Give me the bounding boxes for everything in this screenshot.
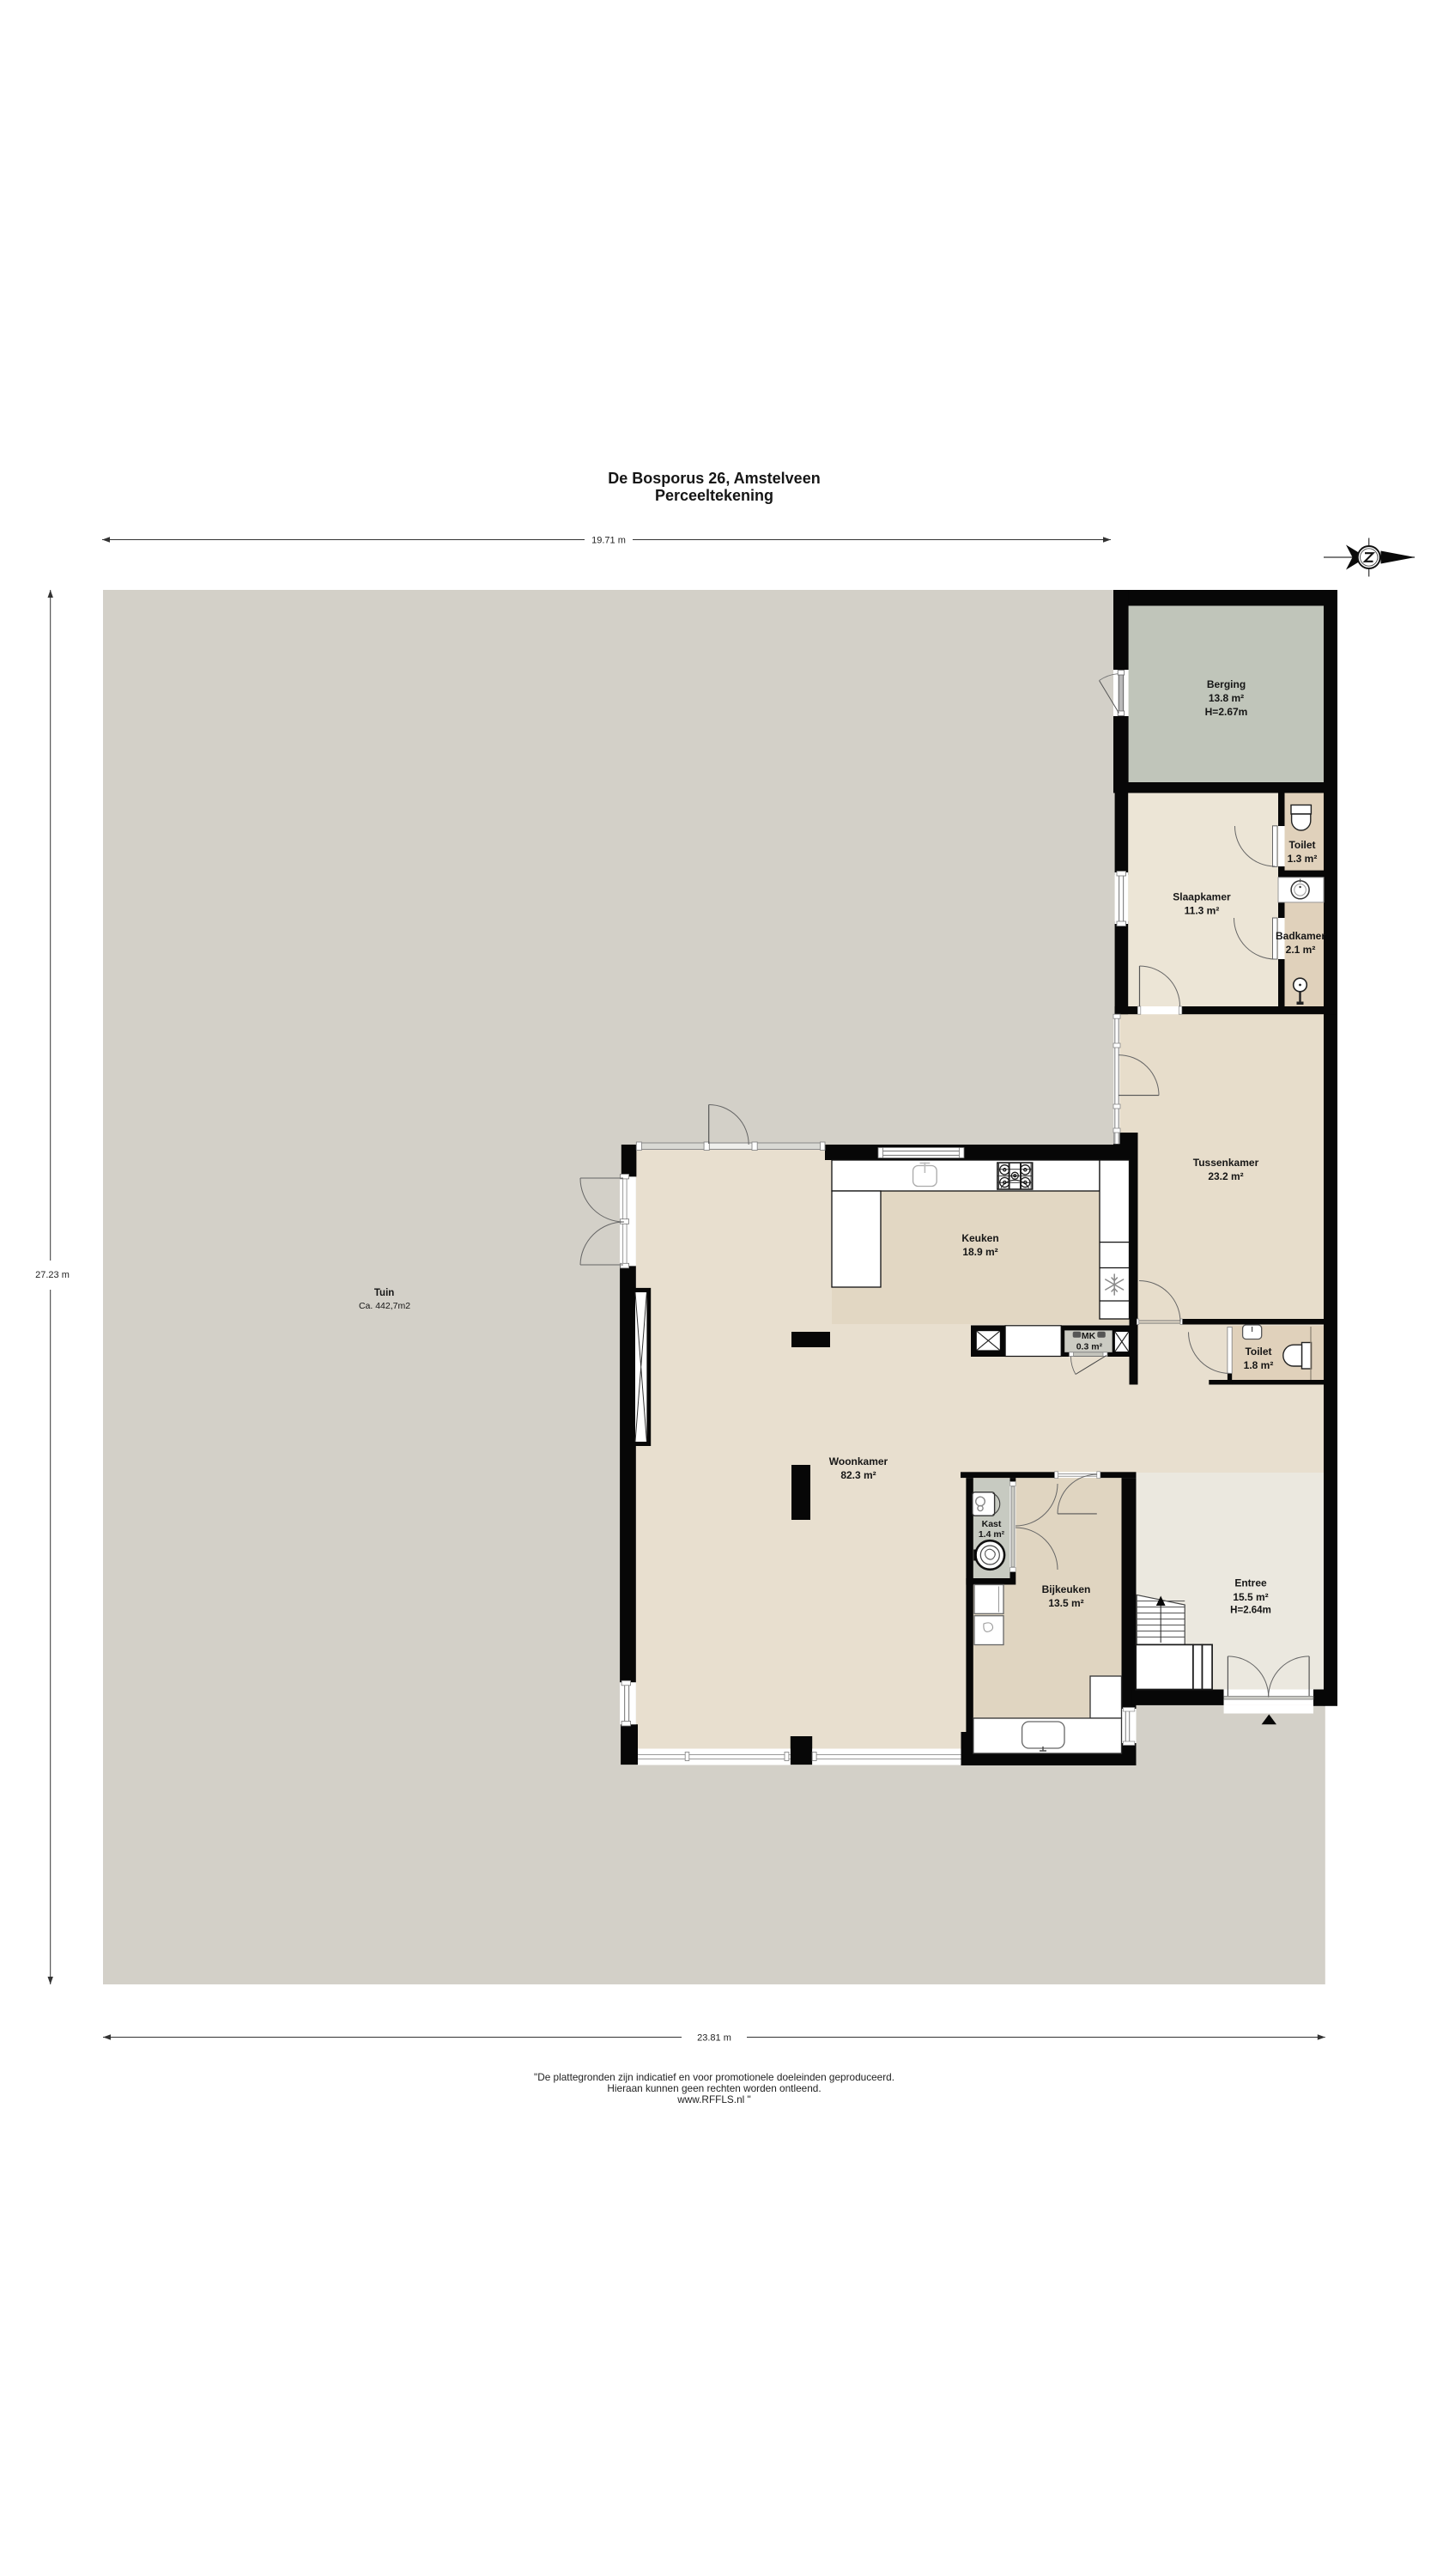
svg-text:Tuin: Tuin bbox=[374, 1288, 394, 1298]
svg-text:Entree: Entree bbox=[1234, 1577, 1267, 1589]
svg-text:1.8 m²: 1.8 m² bbox=[1244, 1359, 1274, 1371]
svg-text:0.3 m²: 0.3 m² bbox=[1076, 1342, 1103, 1352]
svg-text:Bijkeuken: Bijkeuken bbox=[1042, 1583, 1091, 1595]
svg-text:23.81 m: 23.81 m bbox=[697, 2033, 731, 2044]
svg-text:27.23 m: 27.23 m bbox=[35, 1270, 70, 1280]
svg-text:11.3 m²: 11.3 m² bbox=[1185, 905, 1220, 917]
svg-text:Kast: Kast bbox=[982, 1519, 1002, 1529]
svg-text:"De plattegronden zijn indicat: "De plattegronden zijn indicatief en voo… bbox=[534, 2071, 894, 2083]
svg-text:Badkamer: Badkamer bbox=[1276, 930, 1325, 942]
svg-text:2.1 m²: 2.1 m² bbox=[1286, 944, 1316, 956]
svg-text:82.3 m²: 82.3 m² bbox=[840, 1469, 876, 1481]
svg-text:13.5 m²: 13.5 m² bbox=[1048, 1597, 1083, 1609]
svg-text:1.3 m²: 1.3 m² bbox=[1288, 853, 1318, 865]
svg-text:Berging: Berging bbox=[1207, 678, 1246, 690]
svg-text:Keuken: Keuken bbox=[961, 1232, 998, 1244]
svg-text:Ca. 442,7m2: Ca. 442,7m2 bbox=[359, 1301, 410, 1311]
svg-text:18.9 m²: 18.9 m² bbox=[962, 1246, 997, 1258]
svg-text:Perceeltekening: Perceeltekening bbox=[655, 487, 773, 504]
svg-text:Slaapkamer: Slaapkamer bbox=[1173, 891, 1231, 903]
svg-text:Woonkamer: Woonkamer bbox=[829, 1455, 888, 1467]
svg-text:13.8 m²: 13.8 m² bbox=[1209, 692, 1244, 704]
svg-text:Toilet: Toilet bbox=[1245, 1346, 1271, 1358]
svg-text:23.2 m²: 23.2 m² bbox=[1208, 1170, 1243, 1182]
svg-text:15.5 m²: 15.5 m² bbox=[1233, 1591, 1268, 1603]
svg-text:H=2.67m: H=2.67m bbox=[1205, 706, 1248, 718]
svg-text:H=2.64m: H=2.64m bbox=[1230, 1606, 1271, 1616]
svg-text:Hieraan kunnen geen rechten wo: Hieraan kunnen geen rechten worden ontle… bbox=[607, 2082, 821, 2094]
svg-text:19.71 m: 19.71 m bbox=[591, 536, 626, 546]
svg-text:1.4 m²: 1.4 m² bbox=[979, 1529, 1005, 1540]
svg-text:De Bosporus 26, Amstelveen: De Bosporus 26, Amstelveen bbox=[608, 470, 820, 487]
svg-text:www.RFFLS.nl ": www.RFFLS.nl " bbox=[676, 2093, 750, 2105]
svg-text:Toilet: Toilet bbox=[1288, 839, 1315, 851]
svg-text:MK: MK bbox=[1082, 1331, 1096, 1341]
svg-text:Tussenkamer: Tussenkamer bbox=[1193, 1157, 1259, 1169]
